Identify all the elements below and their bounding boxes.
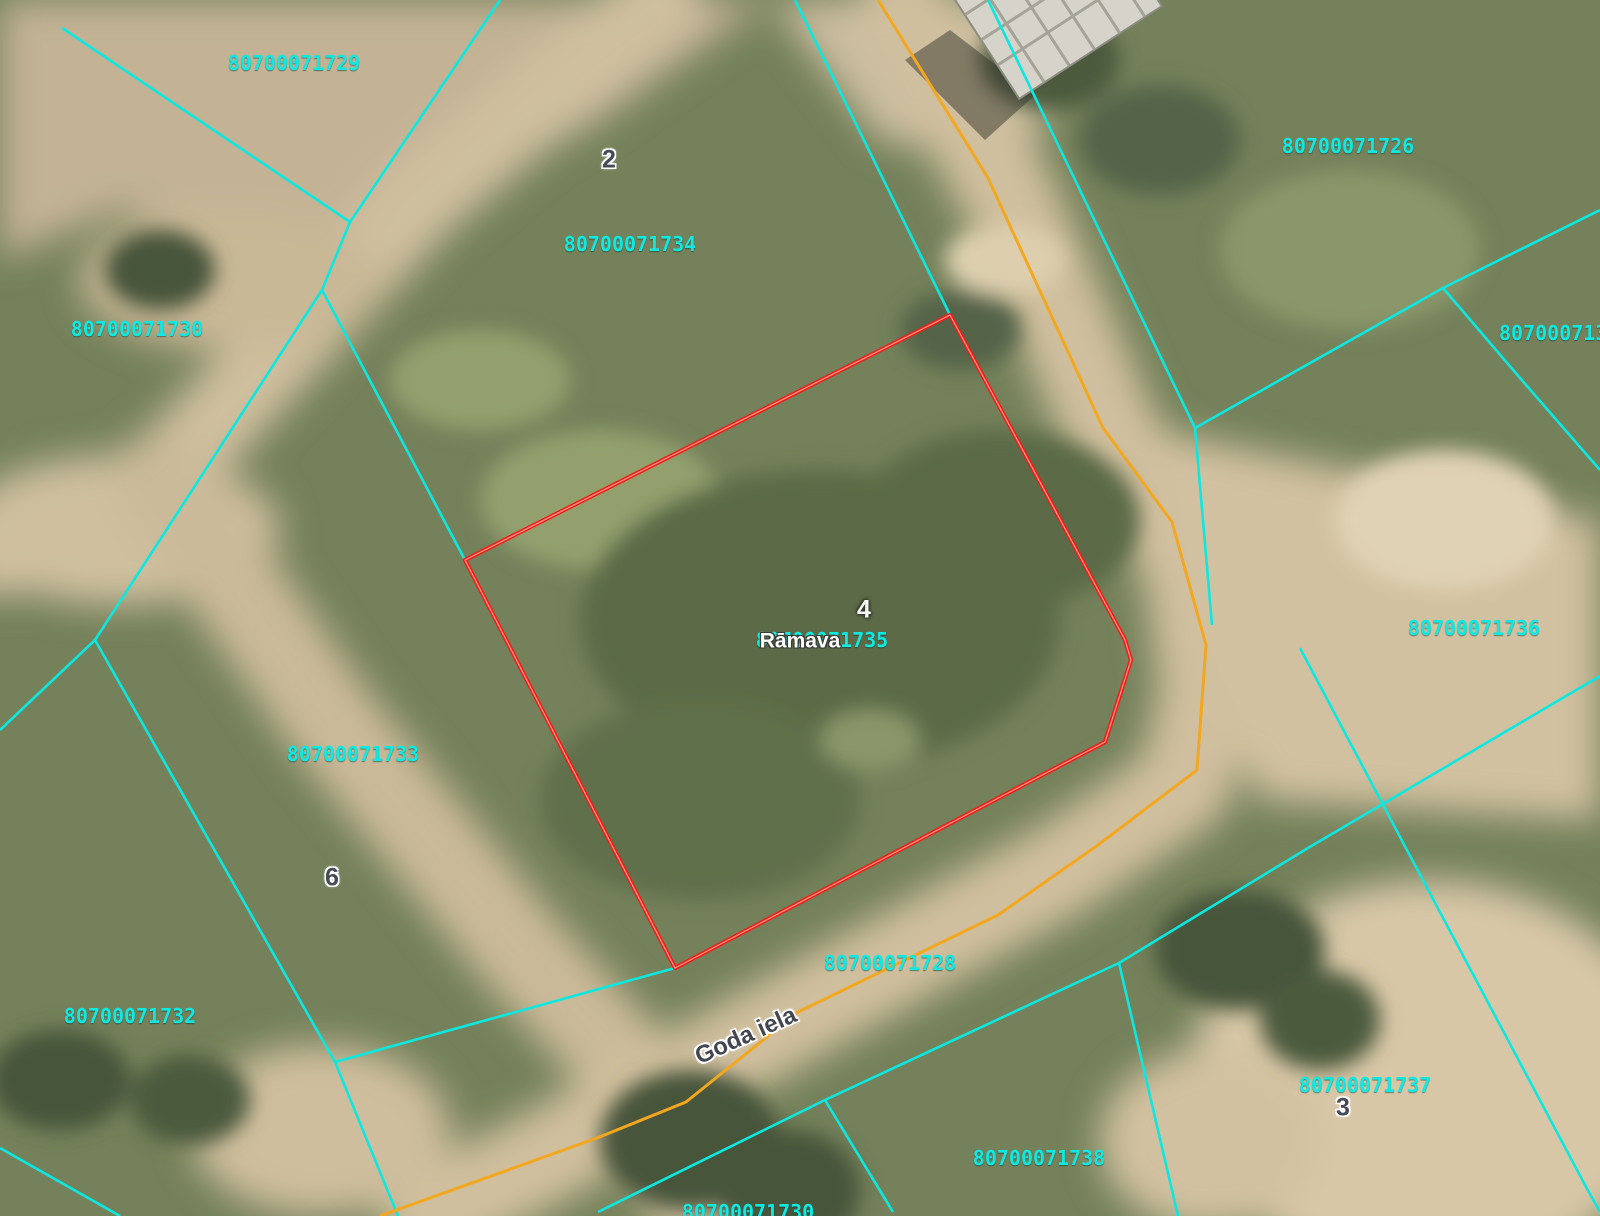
aerial-imagery	[0, 0, 1600, 1216]
cadastral-map-canvas[interactable]: 8070007172980700071734807000717308070007…	[0, 0, 1600, 1216]
